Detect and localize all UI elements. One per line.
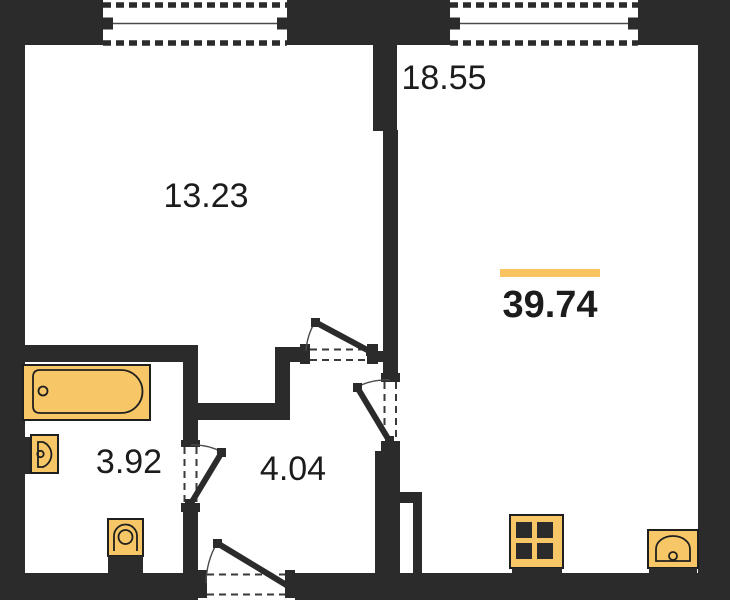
stove-burner: [516, 522, 532, 538]
door-swing-icon-entrance: [198, 539, 295, 598]
floor-plan-canvas: 13.23 18.55 3.92 4.04 39.74: [0, 0, 730, 600]
door-leaf-end: [385, 436, 394, 445]
area-labels: 13.23 18.55 3.92 4.04 39.74: [96, 59, 600, 488]
toilet-tank: [108, 556, 143, 573]
door-leaf-end: [353, 383, 362, 392]
wall-segment: [25, 345, 195, 362]
stove-base: [512, 568, 562, 576]
wall-segment: [195, 403, 290, 420]
door-leaf-end: [311, 318, 320, 327]
kitchen-sink-base: [649, 568, 697, 575]
door-swing-arc: [206, 543, 217, 583]
stove-burner: [537, 522, 553, 538]
wall-segment: [413, 503, 422, 575]
door-leaf-end: [213, 539, 222, 548]
wall-segment: [295, 573, 730, 600]
wall-segment: [698, 43, 730, 575]
bathtub-icon: [23, 365, 150, 420]
window-top-right: [450, 5, 638, 43]
toilet-icon: [108, 519, 143, 573]
room-area-label-bathroom: 3.92: [96, 443, 162, 481]
wall-segment: [395, 492, 422, 503]
stove-burner: [537, 543, 553, 559]
kitchen-sink-icon: [648, 530, 698, 575]
door-jamb: [300, 344, 310, 364]
total-area-label: 39.74: [502, 284, 597, 326]
door-swing-icon-room-top-left: [300, 318, 378, 364]
stove-burner: [516, 543, 532, 559]
wall-segment: [375, 451, 400, 575]
room-area-label-top-left: 13.23: [163, 177, 248, 215]
window-top-left: [103, 5, 287, 43]
window-end-cap: [103, 18, 113, 30]
window-end-cap: [277, 18, 287, 30]
wall-segment: [0, 573, 198, 600]
floor-plan: 13.23 18.55 3.92 4.04 39.74: [0, 0, 730, 600]
wall-segment: [638, 0, 730, 45]
door-leaf-end: [366, 347, 375, 356]
stove-icon: [510, 515, 563, 576]
room-area-label-hallway: 4.04: [260, 450, 326, 488]
door-leaf-end: [217, 448, 226, 457]
door-swing-icon-room-right: [353, 373, 400, 451]
door-jamb: [381, 373, 400, 382]
outer-walls: [0, 0, 730, 600]
total-area-accent-bar: [500, 269, 600, 277]
door-jamb: [198, 570, 207, 598]
door-leaf: [190, 452, 222, 505]
window-end-cap: [450, 18, 460, 30]
wall-segment: [0, 0, 103, 45]
door-leaf: [217, 543, 288, 586]
window-end-cap: [628, 18, 638, 30]
door-leaf: [315, 322, 371, 352]
wall-segment: [275, 347, 303, 362]
wall-segment: [287, 0, 450, 45]
wall-segment: [378, 351, 386, 362]
wall-segment: [373, 45, 397, 131]
room-area-label-right: 18.55: [401, 59, 486, 97]
wall-segment: [183, 345, 198, 440]
door-swing-icon-bathroom: [181, 440, 226, 512]
door-jamb: [181, 440, 200, 447]
wall-segment: [0, 43, 25, 575]
washbasin-icon: [25, 435, 58, 474]
wall-segment: [183, 512, 198, 575]
interior-walls: [25, 45, 422, 575]
door-leaf-end: [185, 499, 194, 508]
wall-segment: [383, 130, 398, 375]
